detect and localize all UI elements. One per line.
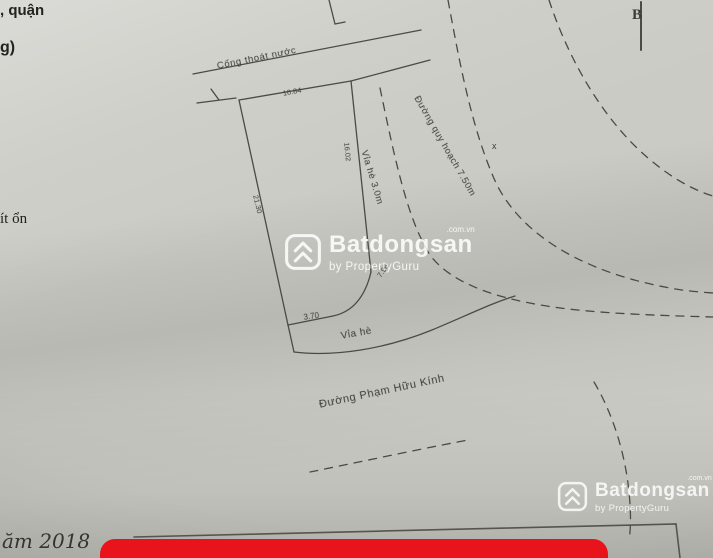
watermark-byline: by PropertyGuru [329,262,473,274]
sidewalk-outer-curve [294,296,515,353]
batdongsan-logo-icon [284,233,322,271]
watermark-domain: .com.vn [687,475,712,482]
bottom-right-dashed-arc [594,382,631,540]
cropped-text-top2: g) [0,39,15,57]
north-label: B [632,7,642,24]
planned-road-dashed-right [448,0,713,293]
planned-road-dashed-outer [549,0,713,196]
right-edge-dimension: 16.02 [342,142,353,162]
photographed-survey-sketch: Cống thoát nước 10.84 21.30 16.02 3.70 7… [0,0,713,558]
watermark-brand: Batdongsan [595,480,710,501]
bottom-center-dashed-line [310,440,468,472]
cropped-text-top: , quận [0,2,44,19]
red-redaction-banner [100,539,608,558]
survey-drawing-lines [0,0,713,558]
watermark-center: Batdongsan.com.vn by PropertyGuru [284,233,473,274]
watermark-bottom-right: Batdongsan.com.vn by PropertyGuru [557,481,710,514]
watermark-byline: by PropertyGuru [595,504,710,514]
batdongsan-logo-icon [557,481,588,512]
left-edge-extension [288,325,294,352]
plot-corner-curve [333,272,371,316]
cropped-text-middle: ít ổn [0,211,27,228]
watermark-brand: Batdongsan [329,231,473,258]
top-corner-lines [329,0,345,24]
plot-left-edge [239,100,288,325]
drain-strip-lower-line-left [197,98,236,103]
handwritten-year: ăm 2018 [2,529,90,553]
drain-strip-lower-line-right [351,60,430,81]
x-mark: x [492,141,497,151]
watermark-domain: .com.vn [447,226,475,234]
strip-tick [211,89,219,100]
